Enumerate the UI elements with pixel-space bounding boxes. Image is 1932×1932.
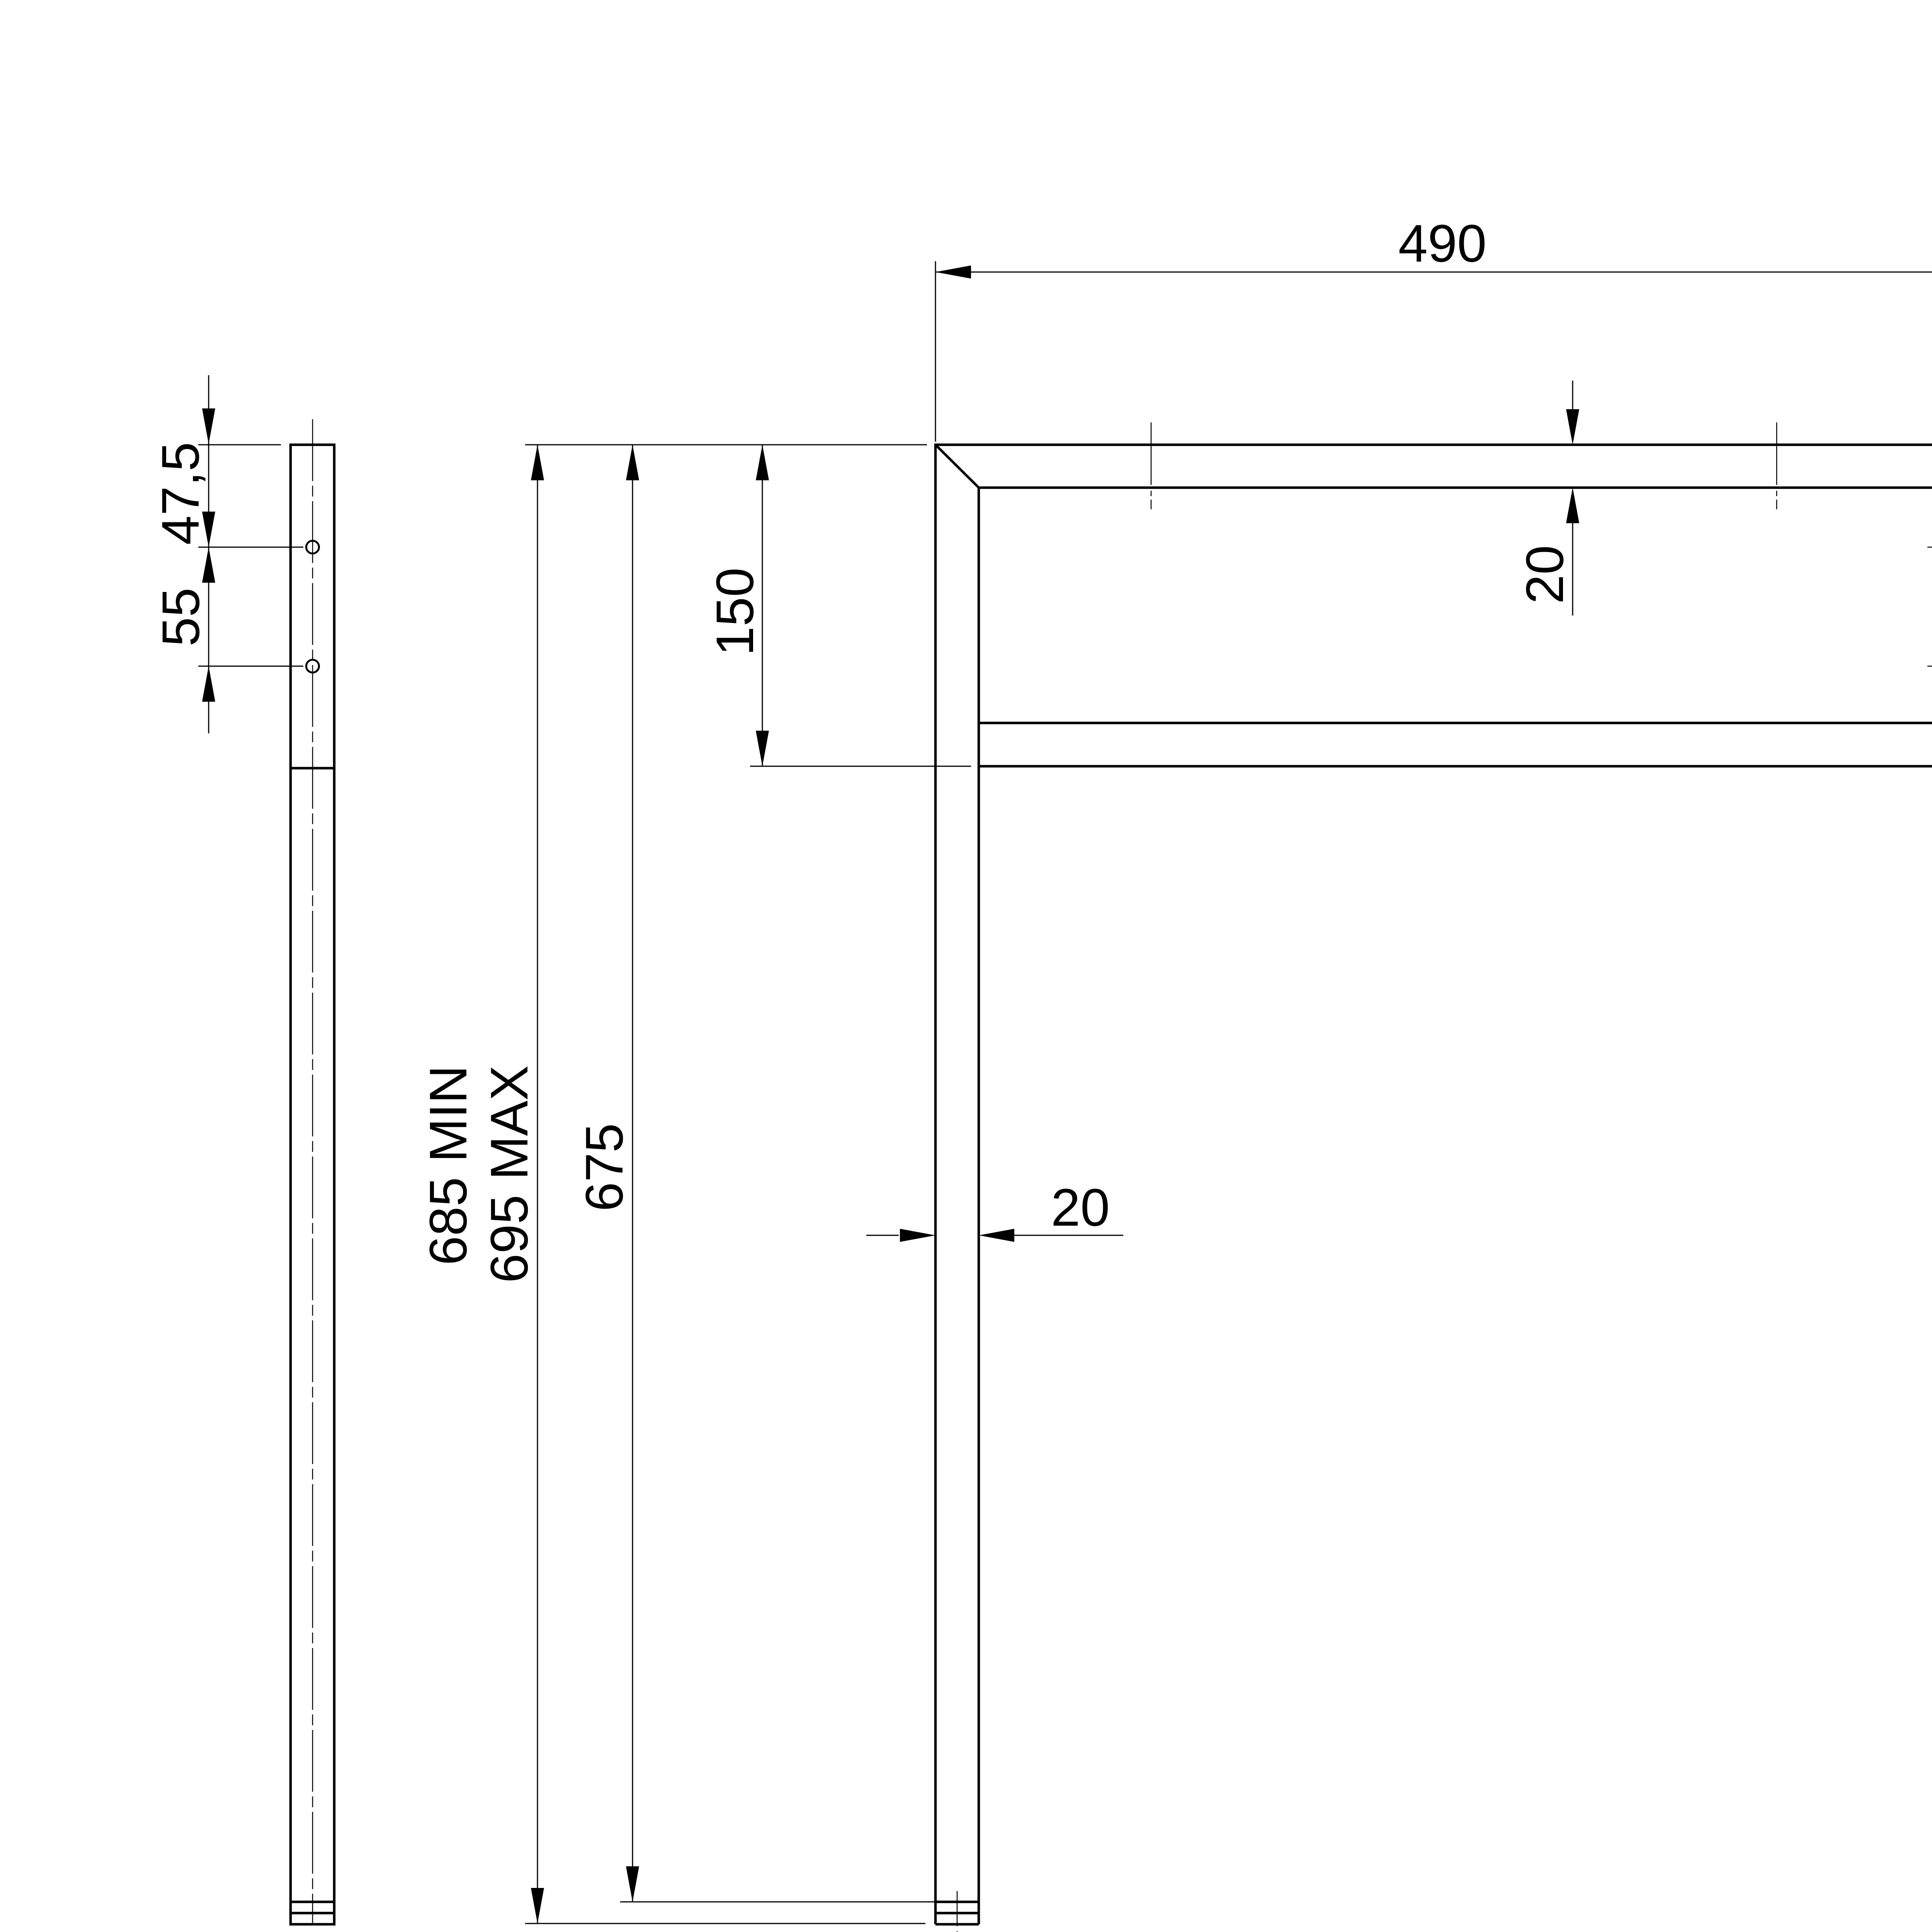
svg-text:20: 20 [1051,1178,1110,1237]
svg-text:47,5: 47,5 [151,442,210,545]
svg-text:675: 675 [575,1123,634,1212]
svg-text:20: 20 [1515,545,1575,604]
svg-text:55: 55 [151,588,211,646]
svg-text:695 MAX: 695 MAX [480,1065,539,1283]
svg-text:685 MIN: 685 MIN [419,1065,478,1265]
svg-text:150: 150 [706,568,765,656]
svg-text:490: 490 [1398,214,1487,273]
